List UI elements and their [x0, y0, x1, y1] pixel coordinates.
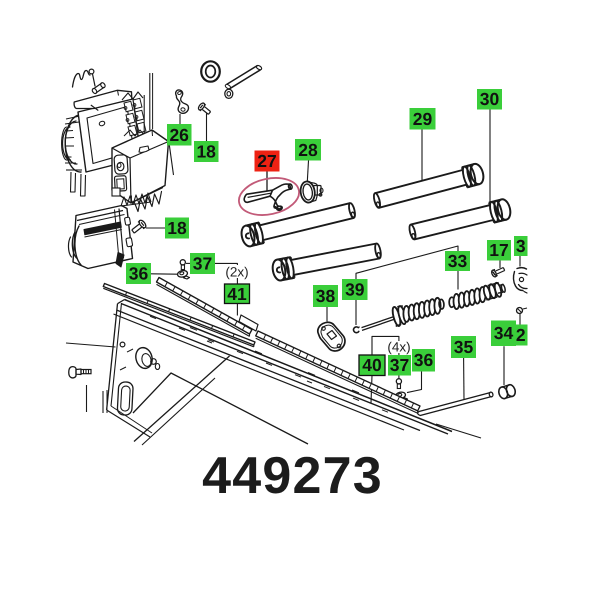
svg-text:18: 18	[196, 142, 216, 162]
svg-text:(4x): (4x)	[387, 340, 410, 355]
svg-text:34: 34	[494, 323, 514, 343]
svg-text:35: 35	[454, 337, 474, 357]
svg-text:(2x): (2x)	[225, 265, 248, 280]
svg-text:39: 39	[345, 280, 365, 300]
svg-text:18: 18	[167, 218, 187, 238]
svg-text:37: 37	[193, 254, 212, 274]
svg-text:36: 36	[414, 350, 434, 370]
svg-text:30: 30	[480, 89, 500, 109]
svg-text:28: 28	[298, 140, 318, 160]
svg-text:29: 29	[413, 109, 433, 129]
svg-text:449273: 449273	[202, 447, 383, 505]
svg-text:41: 41	[227, 284, 247, 304]
svg-text:33: 33	[448, 251, 468, 271]
svg-text:36: 36	[129, 264, 149, 284]
svg-text:17: 17	[489, 240, 508, 260]
svg-text:26: 26	[169, 125, 189, 145]
svg-text:38: 38	[316, 286, 336, 306]
svg-text:37: 37	[390, 355, 409, 375]
svg-text:40: 40	[362, 355, 382, 375]
svg-text:2: 2	[516, 325, 526, 345]
svg-text:3: 3	[516, 236, 526, 256]
svg-text:27: 27	[257, 151, 276, 171]
